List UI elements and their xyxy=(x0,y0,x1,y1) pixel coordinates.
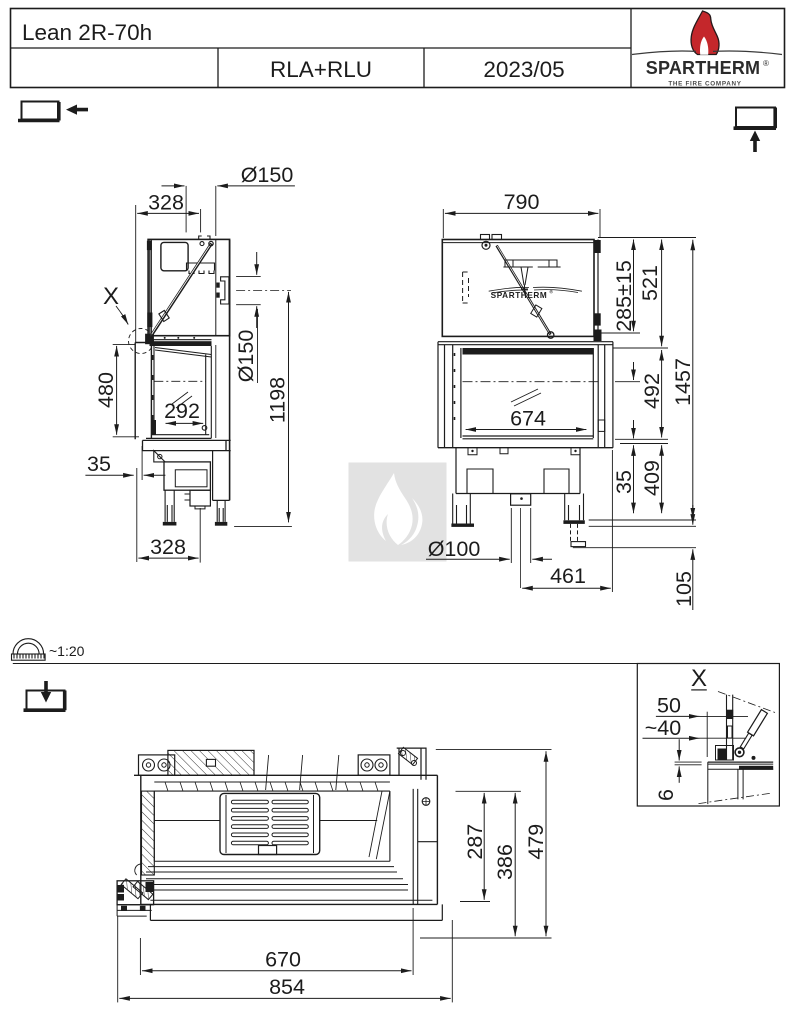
svg-text:2023/05: 2023/05 xyxy=(483,57,564,82)
svg-text:674: 674 xyxy=(510,407,546,431)
svg-text:480: 480 xyxy=(94,372,118,408)
svg-text:6: 6 xyxy=(654,789,678,801)
svg-text:328: 328 xyxy=(148,191,184,215)
svg-text:35: 35 xyxy=(612,470,636,494)
svg-text:SPARTHERM: SPARTHERM xyxy=(491,291,548,300)
svg-text:790: 790 xyxy=(504,190,540,214)
svg-text:Ø150: Ø150 xyxy=(234,330,258,383)
svg-text:292: 292 xyxy=(164,399,200,423)
svg-text:®: ® xyxy=(763,59,769,68)
svg-text:670: 670 xyxy=(265,948,301,972)
svg-text:328: 328 xyxy=(150,535,186,559)
svg-text:RLA+RLU: RLA+RLU xyxy=(270,57,372,82)
svg-text:521: 521 xyxy=(638,265,662,301)
svg-text:285±15: 285±15 xyxy=(612,260,636,332)
svg-text:X: X xyxy=(103,283,119,310)
svg-text:854: 854 xyxy=(269,975,305,999)
svg-text:386: 386 xyxy=(493,844,517,880)
svg-text:1198: 1198 xyxy=(266,377,290,423)
svg-text:Ø150: Ø150 xyxy=(241,163,294,187)
svg-text:1457: 1457 xyxy=(671,358,695,406)
svg-text:Ø100: Ø100 xyxy=(428,537,481,561)
svg-text:Lean 2R-70h: Lean 2R-70h xyxy=(22,20,152,45)
svg-text:50: 50 xyxy=(657,694,681,718)
svg-text:35: 35 xyxy=(87,452,111,476)
svg-text:461: 461 xyxy=(550,564,586,588)
svg-text:409: 409 xyxy=(640,460,664,496)
svg-text:479: 479 xyxy=(524,824,548,860)
svg-text:~40: ~40 xyxy=(645,716,682,740)
svg-text:THE FIRE COMPANY: THE FIRE COMPANY xyxy=(668,81,741,88)
svg-text:X: X xyxy=(691,665,707,692)
svg-text:~1:20: ~1:20 xyxy=(49,643,85,659)
svg-text:287: 287 xyxy=(463,824,487,860)
svg-text:SPARTHERM: SPARTHERM xyxy=(646,58,760,78)
svg-text:492: 492 xyxy=(640,373,664,409)
svg-text:105: 105 xyxy=(672,571,696,607)
